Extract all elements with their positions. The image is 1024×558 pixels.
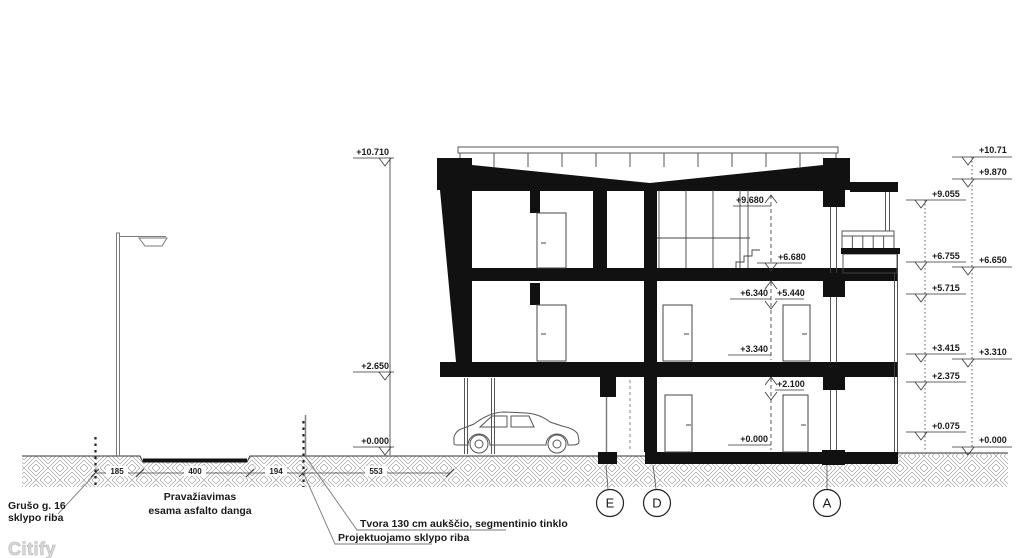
- beam-axis-e: [600, 377, 616, 397]
- level-6755: +6.755: [932, 251, 960, 261]
- column-a-mid1: [823, 273, 845, 297]
- footing-e: [598, 452, 617, 464]
- canopy-right: [850, 182, 898, 192]
- dim-185: 185: [110, 467, 124, 476]
- building-section: [437, 147, 900, 465]
- level-0000-interior: +0.000: [740, 434, 768, 444]
- column-a-mid2: [823, 363, 845, 390]
- driveway-label-line1: Pravažiavimas: [164, 491, 237, 503]
- level-9680: +9.680: [736, 195, 764, 205]
- lintel-floor2: [530, 283, 540, 305]
- level-5440: +5.440: [777, 288, 805, 298]
- axis-e-label: E: [606, 496, 615, 511]
- watermark: Citify: [8, 539, 56, 558]
- doors: [537, 213, 810, 452]
- balcony-railing: [841, 231, 900, 254]
- right-inner-elevation-dimensions: [906, 200, 966, 452]
- driveway-label-line2: esama asfalto danga: [148, 505, 251, 517]
- thin-elements: [465, 190, 898, 454]
- roof-railing: [458, 147, 838, 167]
- section-canvas: 185 400 194 553: [0, 0, 1024, 558]
- level-6340: +6.340: [740, 288, 768, 298]
- lintel-top-floor: [530, 190, 540, 213]
- lamp-head: [139, 238, 167, 246]
- level-9870: +9.870: [979, 167, 1007, 177]
- fence-note-label: Tvora 130 cm aukščio, segmentinio tinklo: [360, 518, 568, 530]
- asphalt-strip: [143, 459, 247, 463]
- level-2100: +2.100: [777, 379, 805, 389]
- slab-ground: [645, 452, 898, 464]
- left-elevation-dimensions: [353, 158, 394, 455]
- parapet-right: [823, 158, 850, 190]
- roof-slab: [472, 165, 823, 191]
- level-3415: +3.415: [932, 343, 960, 353]
- wall-top-floor: [593, 190, 607, 268]
- level-10710: +10.710: [356, 147, 389, 157]
- architectural-section-drawing: 185 400 194 553: [0, 0, 1024, 558]
- dim-553: 553: [369, 467, 383, 476]
- interior-level-dimensions: [728, 195, 804, 450]
- proj-boundary-label: Projektuojamo sklypo riba: [338, 532, 469, 544]
- level-0075: +0.075: [932, 421, 960, 431]
- level-9055: +9.055: [932, 189, 960, 199]
- right-outer-elevation-dimensions: [952, 157, 1012, 455]
- level-0000-right: +0.000: [979, 435, 1007, 445]
- level-3340: +3.340: [740, 344, 768, 354]
- level-5715: +5.715: [932, 283, 960, 293]
- car: [454, 412, 579, 453]
- dim-400: 400: [188, 467, 202, 476]
- dim-194: 194: [269, 467, 283, 476]
- axis-a-label: A: [823, 496, 832, 511]
- left-boundary-label-line2: sklypo riba: [8, 512, 64, 524]
- level-0000-left: +0.000: [361, 436, 389, 446]
- level-3310: +3.310: [979, 347, 1007, 357]
- balcony-slab: [841, 248, 900, 254]
- column-a-top: [823, 190, 845, 207]
- level-6650: +6.650: [979, 255, 1007, 265]
- parapet-left: [437, 158, 472, 190]
- wall-axis-d: [644, 190, 657, 452]
- level-2375: +2.375: [932, 371, 960, 381]
- level-6680: +6.680: [778, 252, 806, 262]
- street-lamp: [116, 233, 167, 456]
- axis-d-label: D: [652, 496, 661, 511]
- left-boundary-label-line1: Grušo g. 16: [8, 500, 66, 512]
- structure-black: [437, 158, 898, 465]
- column-a-base: [822, 450, 845, 465]
- level-2650: +2.650: [361, 361, 389, 371]
- level-1071: +10.71: [979, 145, 1007, 155]
